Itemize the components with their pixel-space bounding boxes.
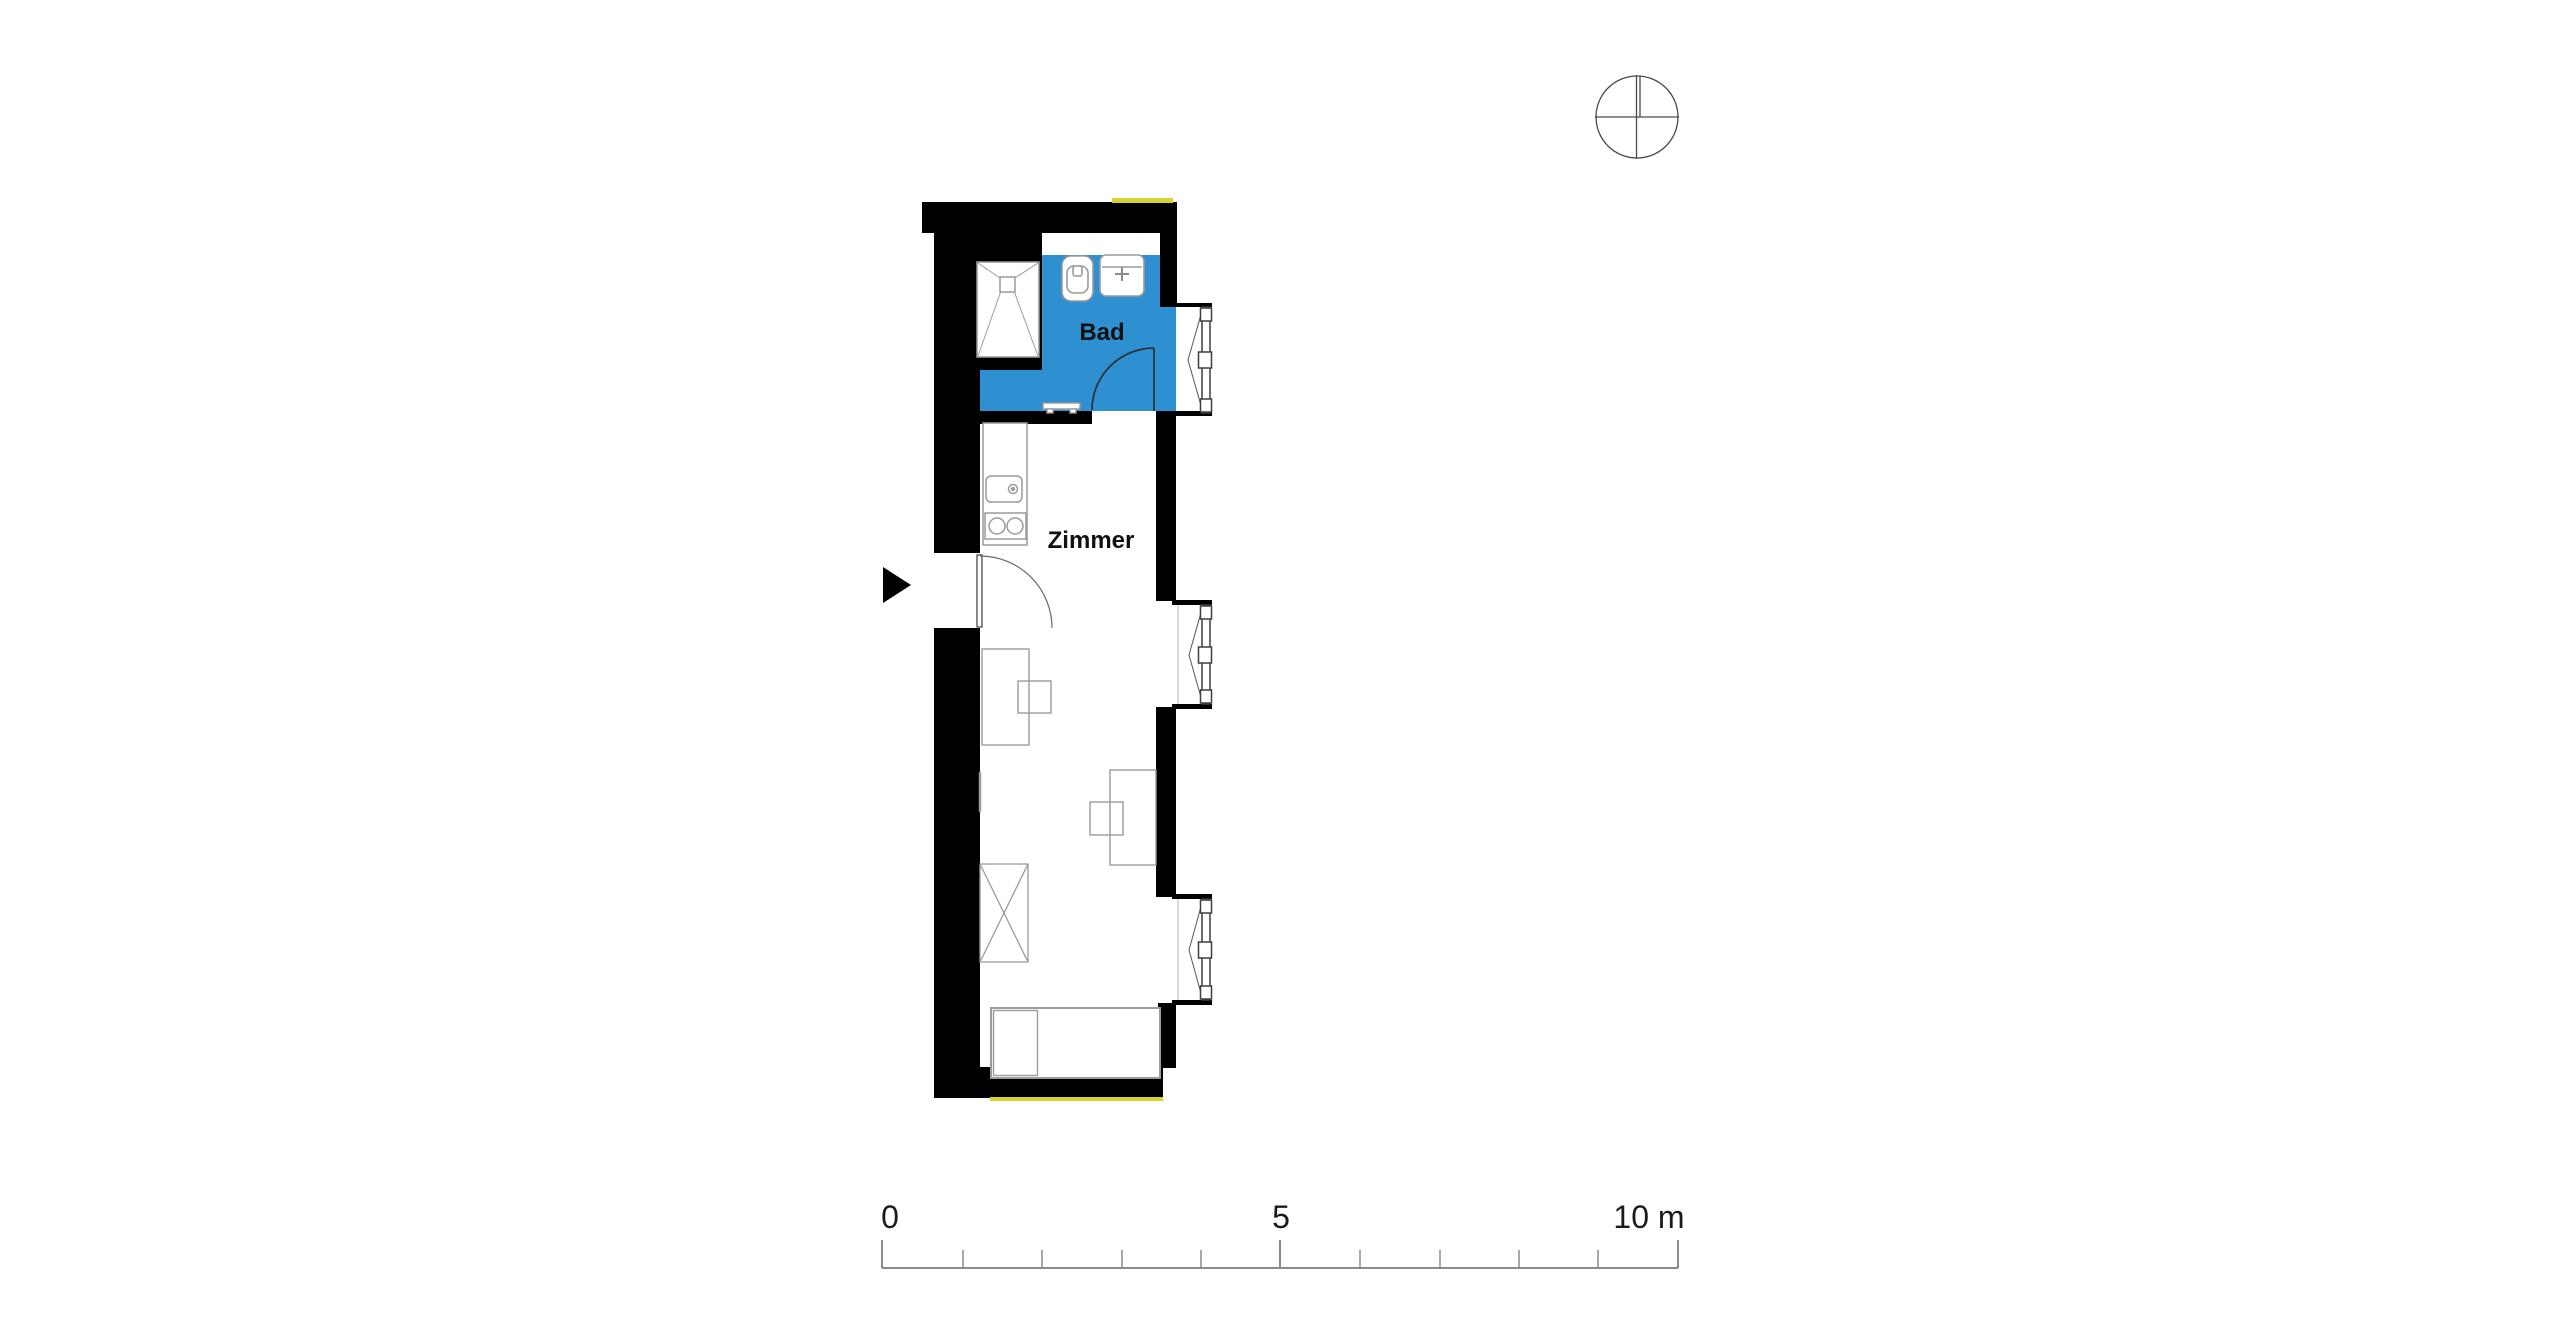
desk-icon xyxy=(1110,770,1156,865)
window1-recess xyxy=(1176,307,1212,411)
scale-tick-5-label: 5 xyxy=(1272,1199,1290,1236)
scale-bar xyxy=(882,1240,1678,1268)
right-wall-below-window3 xyxy=(1158,1003,1176,1068)
wardrobe-icon xyxy=(980,864,1028,962)
chair-icon xyxy=(1018,681,1051,713)
bathroom-partition-wall xyxy=(980,411,1092,424)
north-compass-icon xyxy=(1595,75,1679,159)
window2-recess xyxy=(1176,605,1212,704)
scale-tick-10-label: 10 m xyxy=(1613,1199,1684,1236)
kitchenette-sink-icon xyxy=(986,476,1022,502)
chair-icon xyxy=(1090,802,1123,835)
left-wall-lower xyxy=(934,628,980,1067)
bathroom-floor-left xyxy=(980,370,1042,411)
window3-recess xyxy=(1176,899,1212,1000)
bottom-wall xyxy=(934,1067,1163,1098)
bathroom-floor-window-strip xyxy=(1160,307,1176,411)
left-wall-upper xyxy=(934,232,980,553)
bathroom-label: Bad xyxy=(1079,319,1124,347)
window1-bottom-sill xyxy=(1160,411,1212,416)
party-wall-stripe-bottom xyxy=(990,1097,1163,1101)
desk-icon xyxy=(982,649,1029,745)
plan-linework xyxy=(0,0,2560,1331)
right-wall-between-window1-2 xyxy=(1156,411,1176,601)
scale-tick-0-label: 0 xyxy=(881,1199,899,1236)
window3-bottom-sill xyxy=(1172,1000,1212,1005)
right-wall-between-window2-3 xyxy=(1156,707,1176,897)
kitchenette-stove-icon xyxy=(985,513,1026,539)
duct-shaft-wall xyxy=(980,233,1042,370)
window2-bottom-sill xyxy=(1172,704,1212,709)
bathroom-top-ledge xyxy=(1042,233,1160,255)
entry-arrow-icon xyxy=(883,567,911,603)
room-label: Zimmer xyxy=(1048,527,1135,555)
party-wall-stripe-top xyxy=(1112,198,1173,203)
floor-plan-page: Bad Zimmer 0 5 10 m xyxy=(0,0,2560,1331)
right-wall-above-window1 xyxy=(1160,233,1177,305)
kitchenette-icon xyxy=(983,423,1027,545)
top-wall xyxy=(922,202,1177,233)
entry-door-swing xyxy=(977,555,1052,628)
